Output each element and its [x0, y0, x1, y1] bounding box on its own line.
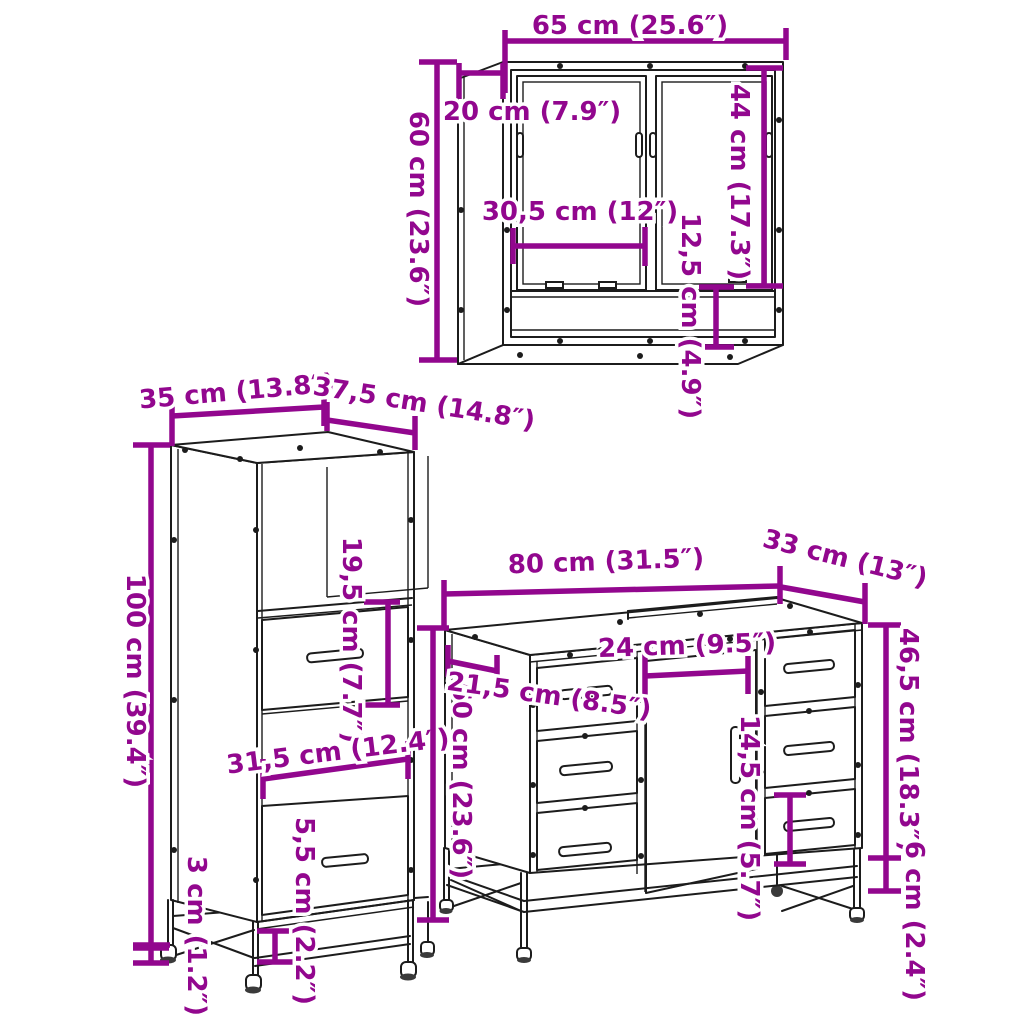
vanity-door-inset-dimension-label: 14,5 cm (5.7″): [734, 715, 764, 921]
door-hinge: [517, 133, 523, 157]
mirror-shelf-gap-dimension-label: 12,5 cm (4.9″): [675, 213, 705, 419]
door-handle: [636, 133, 642, 157]
vanity-right-height-dimension-label: 46,5 cm (18.3″): [893, 628, 923, 852]
mirror-width-dimension-label: 65 cm (25.6″): [532, 11, 728, 41]
door-handle: [650, 133, 656, 157]
mirror-height-dimension-label: 60 cm (23.6″): [403, 111, 433, 307]
diagram-canvas: 65 cm (25.6″) 20 cm (7.9″) 60 cm (23.6″)…: [0, 0, 1024, 1024]
tall-clearance-dimension-label: 5,5 cm (2.2″): [289, 817, 319, 1005]
vanity-width-dimension-label: 80 cm (31.5″): [507, 544, 704, 581]
furniture-dimension-diagram: 65 cm (25.6″) 20 cm (7.9″) 60 cm (23.6″)…: [0, 0, 1024, 1024]
tall-height-dimension-label: 100 cm (39.4″): [120, 574, 150, 788]
door-hinge: [766, 133, 772, 157]
vanity-depth-dimension-label: 33 cm (13″): [760, 524, 931, 594]
tall-drawer-height-dimension-label: 19,5 cm (7.7″): [336, 537, 366, 743]
tall-depth-dimension-label: 37,5 cm (14.8″): [311, 372, 537, 437]
vanity-height-dimension-label: 60 cm (23.6″): [446, 683, 476, 879]
mirror-door-width-dimension-label: 30,5 cm (12″): [482, 197, 678, 227]
tall-foot-height-dimension-label: 3 cm (1.2″): [181, 856, 211, 1016]
cabinet-feet: [440, 900, 865, 963]
mirror-door-height-dimension-label: 44 cm (17.3″): [724, 84, 754, 280]
vanity-frame-height-dimension-label: 6 cm (2.4″): [899, 841, 929, 1001]
vanity-opening-width-dimension-label: 24 cm (9.5″): [597, 628, 776, 664]
mirror-depth-dimension-label: 20 cm (7.9″): [443, 97, 621, 127]
